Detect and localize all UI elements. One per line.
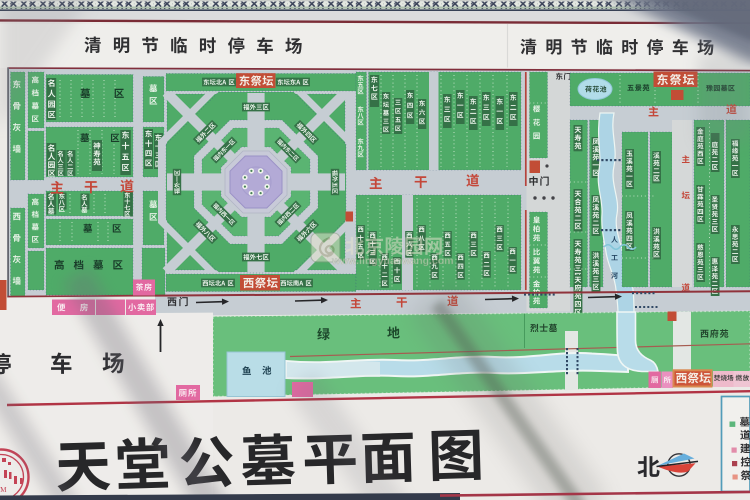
svg-text:TM: TM — [0, 486, 7, 494]
svg-text:www.lingyuanwang.com: www.lingyuanwang.com — [331, 255, 454, 267]
